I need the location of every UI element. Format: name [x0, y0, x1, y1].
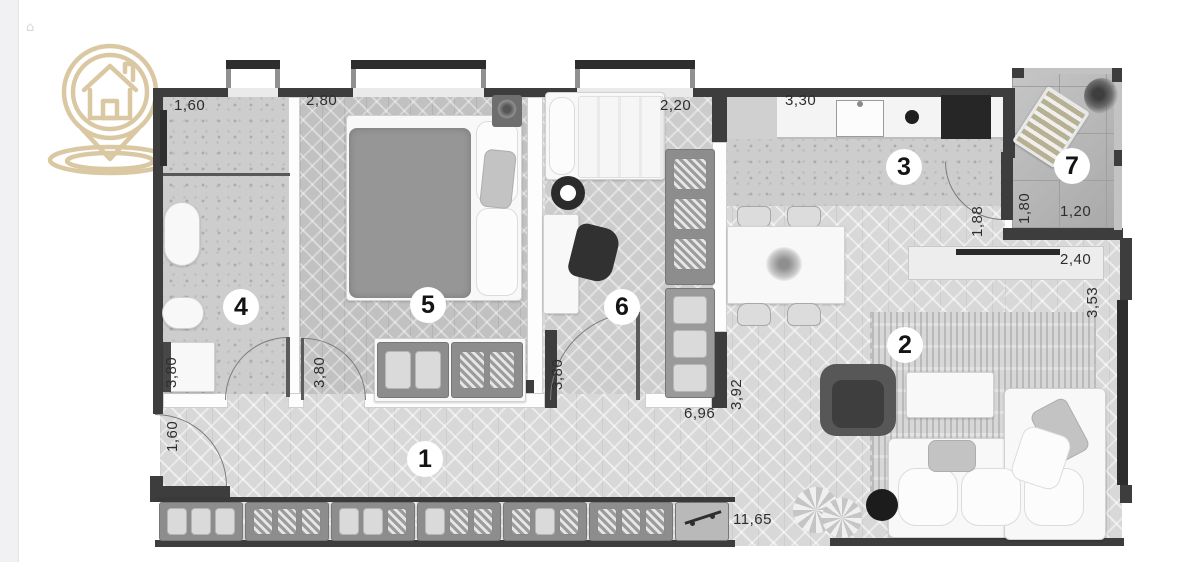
storage-basket	[673, 238, 707, 270]
storage-basket	[621, 508, 641, 535]
balcony-post-tl	[1012, 68, 1024, 78]
dining-chair	[787, 303, 821, 326]
logo-house-chimney	[125, 64, 133, 80]
storage-basket	[559, 508, 579, 535]
dim-bathroom-top: 1,60	[174, 98, 205, 115]
living-room-window-bar	[1117, 300, 1128, 485]
storage-box	[167, 508, 187, 535]
sofa-seat-cushion	[898, 468, 958, 526]
dim-entry-left: 1,60	[165, 421, 182, 452]
storage-basket	[511, 508, 531, 535]
storage-basket	[489, 351, 515, 389]
logo-base-dot	[126, 168, 131, 173]
dim-bathroom-left: 3,80	[164, 357, 181, 388]
bedroom6-side-table-top	[560, 185, 576, 201]
bathroom-towel-rail	[160, 110, 167, 166]
storage-box	[415, 351, 441, 389]
room-badge-5: 5	[410, 287, 446, 323]
logo-pin-circle	[64, 46, 156, 138]
storage-box	[673, 296, 707, 324]
kitchen-counter-left-cabinet	[727, 97, 777, 139]
storage-box	[673, 330, 707, 358]
bedroom5-accent-pillow	[479, 148, 517, 209]
sofa-accent-pillow	[928, 440, 976, 472]
bedroom5-door-leaf	[301, 338, 304, 400]
wall-stub-bedroom6-living	[712, 332, 727, 408]
dim-bedroom5-left: 3,80	[312, 357, 329, 388]
room-badge-1: 1	[407, 441, 443, 477]
floor-plan-page: ⌂	[0, 0, 1200, 562]
storage-box	[339, 508, 359, 535]
storage-box	[363, 508, 383, 535]
wall-kitchen-right	[1003, 88, 1015, 158]
wall-right-upper	[1120, 238, 1132, 300]
wall-top-1	[153, 88, 228, 97]
bathroom-washbasin	[164, 202, 200, 266]
balcony-rail-top	[1012, 68, 1122, 74]
storage-basket	[673, 198, 707, 230]
kitchen-cooktop	[941, 95, 991, 139]
dim-hall-side: 3,92	[729, 379, 746, 410]
dim-kitchen-balcony-door: 1,88	[970, 206, 987, 237]
balcony-plant	[1084, 78, 1120, 114]
window-bar-bedroom5	[351, 60, 486, 69]
storage-box	[425, 508, 445, 535]
dining-centerpiece-plant	[766, 247, 802, 281]
wall-hall-seg1	[163, 393, 228, 408]
living-armchair-cushion	[832, 380, 884, 428]
bedroom6-door-leaf	[636, 312, 640, 400]
bedroom5-plant	[497, 99, 517, 119]
bathroom-toilet	[162, 297, 204, 329]
window-post	[275, 69, 280, 88]
logo-house-body	[90, 90, 130, 118]
floor-plant-flower	[822, 498, 862, 538]
partition-bedroom5-bedroom6	[527, 97, 543, 394]
bedroom6-pillow	[549, 97, 575, 175]
bedroom5-pillow-2	[476, 208, 518, 296]
bathroom-door-leaf	[286, 337, 290, 397]
tv	[956, 249, 1060, 255]
storage-basket	[277, 508, 297, 535]
window-bar-bathroom	[226, 60, 280, 69]
storage-box	[191, 508, 211, 535]
dim-bedroom5-top: 2,80	[306, 93, 337, 110]
dim-balcony-bottom: 1,20	[1060, 204, 1091, 221]
wall-kitchen-left-upper	[712, 97, 727, 142]
balcony-door-jamb	[1001, 152, 1013, 220]
rod-dot	[710, 514, 715, 519]
room-badge-6: 6	[604, 289, 640, 325]
storage-basket	[673, 158, 707, 190]
room-badge-2: 2	[887, 327, 923, 363]
room-badge-4: 4	[223, 289, 259, 325]
storage-box	[535, 508, 555, 535]
window-post	[690, 69, 695, 88]
wardrobe-top-rail	[155, 497, 735, 502]
room-badge-7: 7	[1054, 148, 1090, 184]
window-opening-bedroom5	[353, 88, 484, 97]
storage-basket	[449, 508, 469, 535]
window-post	[351, 69, 356, 88]
floor-plant-pot	[866, 489, 898, 521]
dim-kitchen-top: 3,30	[785, 93, 816, 110]
dim-balcony-left: 1,80	[1017, 193, 1034, 224]
wall-under-balcony	[1003, 228, 1123, 240]
window-post	[481, 69, 486, 88]
storage-box	[385, 351, 411, 389]
dim-bedroom6-top: 2,20	[660, 98, 691, 115]
storage-basket	[387, 508, 407, 535]
coffee-table	[906, 372, 994, 418]
sofa-seat-cushion	[961, 468, 1021, 526]
wall-right-lower	[1120, 485, 1132, 503]
partition-bedroom6-kitchen	[712, 142, 727, 332]
page-left-strip	[0, 0, 19, 562]
dim-hall-upper: 6,96	[684, 406, 715, 423]
bathroom-divider	[163, 173, 290, 176]
window-post	[226, 69, 231, 88]
logo-house-roof	[84, 66, 136, 90]
dim-living-sideboard: 2,40	[1060, 252, 1091, 269]
window-opening-bathroom	[228, 88, 278, 97]
dim-hall-bottom: 11,65	[733, 512, 772, 529]
storage-box	[215, 508, 235, 535]
window-bar-bedroom6	[575, 60, 695, 69]
kitchen-knob	[905, 110, 919, 124]
kitchen-faucet	[857, 101, 863, 107]
dining-chair	[737, 303, 771, 326]
wall-bottom-wardrobe	[155, 540, 735, 547]
storage-basket	[597, 508, 617, 535]
bedroom5-duvet	[349, 128, 471, 298]
storage-basket	[645, 508, 665, 535]
logo-house-door	[103, 101, 117, 118]
storage-basket	[473, 508, 493, 535]
dim-living-window: 3,53	[1085, 287, 1102, 318]
storage-box	[673, 364, 707, 392]
bedroom6-blanket	[578, 96, 664, 178]
storage-basket	[459, 351, 485, 389]
balcony-post-tr	[1112, 68, 1122, 82]
storage-basket	[301, 508, 321, 535]
dim-bedroom6-left: 3,80	[550, 359, 567, 390]
room-badge-3: 3	[886, 149, 922, 185]
rod-dot	[690, 521, 695, 526]
window-post	[575, 69, 580, 88]
balcony-post-mid	[1114, 150, 1122, 166]
storage-basket	[253, 508, 273, 535]
